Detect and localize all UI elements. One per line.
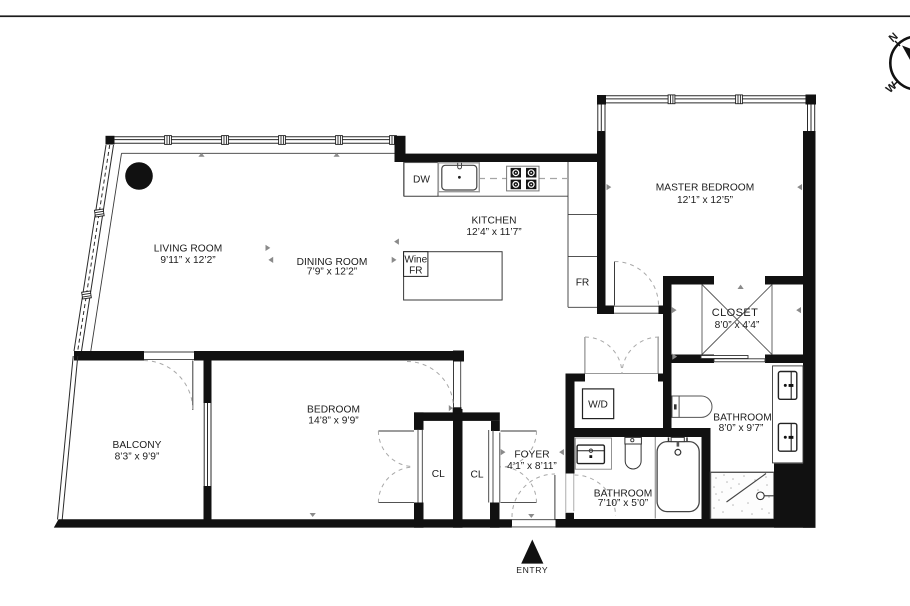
- svg-text:Wine: Wine: [404, 255, 427, 266]
- svg-text:LIVING ROOM: LIVING ROOM: [154, 244, 222, 255]
- svg-text:CL: CL: [470, 470, 483, 481]
- svg-text:14’8” x 9’9”: 14’8” x 9’9”: [308, 416, 359, 427]
- svg-text:FR: FR: [576, 278, 590, 289]
- svg-text:DW: DW: [413, 175, 430, 186]
- svg-text:CL: CL: [432, 469, 445, 480]
- svg-text:KITCHEN: KITCHEN: [471, 216, 516, 227]
- svg-text:12’4” x 11’7”: 12’4” x 11’7”: [466, 227, 522, 238]
- svg-text:BALCONY: BALCONY: [112, 440, 161, 451]
- svg-text:8’0” x 9’7”: 8’0” x 9’7”: [719, 423, 764, 434]
- svg-text:MASTER BEDROOM: MASTER BEDROOM: [656, 183, 755, 194]
- svg-text:W/D: W/D: [588, 400, 608, 411]
- svg-text:8’3” x 9’9”: 8’3” x 9’9”: [115, 451, 160, 462]
- svg-text:9’11” x 12’2”: 9’11” x 12’2”: [160, 255, 216, 266]
- svg-text:4’1” x 8’11”: 4’1” x 8’11”: [507, 461, 557, 472]
- svg-text:12’1” x 12’5”: 12’1” x 12’5”: [677, 195, 734, 206]
- svg-text:FR: FR: [409, 266, 422, 277]
- svg-text:FOYER: FOYER: [514, 450, 549, 461]
- svg-text:CLOSET: CLOSET: [712, 307, 758, 319]
- svg-text:8’0” x 4’4”: 8’0” x 4’4”: [715, 320, 760, 331]
- svg-text:ENTRY: ENTRY: [516, 565, 548, 575]
- svg-text:7’10” x 5’0”: 7’10” x 5’0”: [598, 498, 649, 509]
- svg-text:BEDROOM: BEDROOM: [307, 405, 360, 416]
- svg-text:7’9” x 12’2”: 7’9” x 12’2”: [307, 267, 358, 278]
